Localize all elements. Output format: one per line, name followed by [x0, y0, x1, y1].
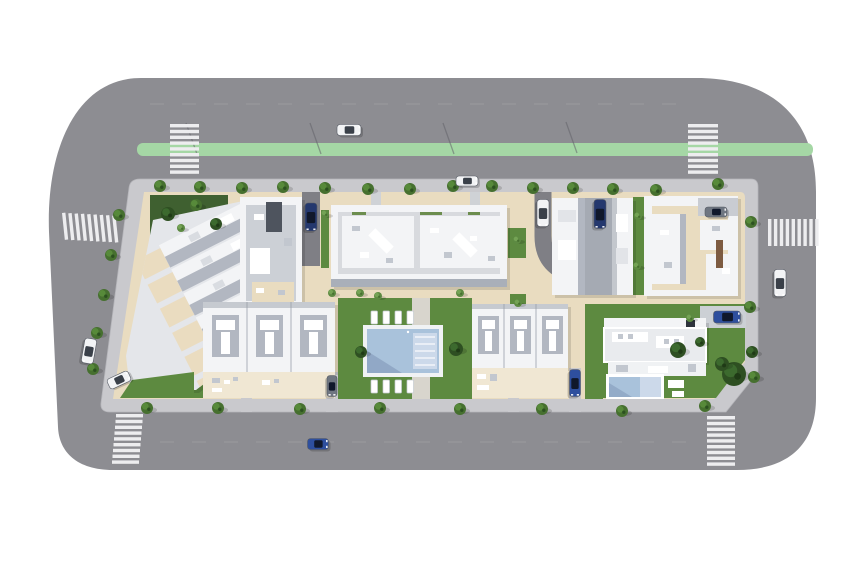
crosswalk-stripe — [170, 124, 199, 127]
crosswalk-stripe — [774, 219, 777, 246]
tree-texture — [168, 213, 172, 217]
crosswalk-stripe — [113, 455, 140, 458]
crosswalk-stripe — [707, 462, 735, 465]
crosswalk-stripe — [707, 451, 735, 454]
car-driveway-east — [535, 200, 549, 229]
sun-lounger — [371, 380, 378, 393]
tree-texture — [410, 189, 413, 192]
car-cabin — [314, 440, 322, 447]
crosswalk-stripe — [688, 153, 718, 156]
crosswalk-stripe — [707, 433, 735, 436]
tree-texture — [283, 187, 286, 190]
tree-texture — [200, 187, 203, 190]
crosswalk-stripe — [170, 159, 199, 162]
car-cabin — [307, 212, 315, 223]
tree-texture — [750, 307, 753, 310]
crosswalk-stripe — [768, 219, 771, 246]
car-top-road — [337, 125, 363, 138]
crosswalk-stripe — [707, 457, 735, 460]
crosswalk — [707, 416, 735, 466]
car-headlight — [329, 394, 331, 396]
car-headlight — [725, 209, 727, 211]
tree-texture — [734, 373, 741, 380]
tree-texture — [718, 184, 721, 187]
car-right-road — [772, 270, 786, 299]
tree-texture — [637, 266, 639, 268]
car-headlight — [782, 294, 784, 296]
crosswalk-stripe — [688, 124, 718, 127]
tree-texture — [380, 408, 383, 411]
car-headlight — [476, 182, 478, 184]
car-headlight — [359, 126, 361, 128]
crosswalk-stripe — [115, 426, 142, 429]
car-east-building — [705, 207, 729, 219]
car-villa — [714, 311, 743, 325]
crosswalk-stripe — [112, 460, 139, 463]
roof-planter — [468, 212, 480, 215]
tree-texture — [378, 296, 380, 298]
tree-texture — [678, 349, 682, 353]
entry-path-b1 — [371, 192, 381, 206]
sun-lounger — [371, 311, 378, 324]
sun-lounger — [395, 311, 402, 324]
crosswalk-stripe — [815, 219, 818, 246]
wood-pergola — [716, 240, 723, 268]
crosswalk-stripe — [688, 147, 718, 150]
car-cabin — [596, 209, 604, 221]
sun-lounger — [383, 311, 390, 324]
crosswalk-stripe — [707, 428, 735, 431]
sun-lounger — [407, 380, 414, 393]
tree-texture — [104, 295, 107, 298]
crosswalk — [768, 219, 819, 246]
tree-texture — [638, 216, 640, 218]
north-apartment-building — [331, 205, 510, 290]
sun-lounger — [407, 311, 414, 324]
crosswalk-stripe — [707, 439, 735, 442]
crosswalk-stripe — [170, 141, 199, 144]
block-f-patios — [472, 368, 568, 398]
crosswalk-stripe — [688, 159, 718, 162]
tree-texture — [751, 222, 754, 225]
car-bottom-road — [308, 439, 331, 452]
roof-pergola — [250, 248, 270, 274]
car-cabin — [722, 313, 733, 321]
tree-texture — [622, 411, 625, 414]
block-f-unit — [478, 316, 499, 354]
crosswalk-stripe — [688, 130, 718, 133]
crosswalk-stripe — [116, 414, 143, 417]
block-f-unit — [542, 316, 563, 354]
tree-texture — [722, 363, 726, 367]
car-headlight — [359, 132, 361, 134]
car-cabin — [571, 378, 578, 389]
crosswalk-stripe — [170, 147, 199, 150]
tree-texture — [492, 186, 495, 189]
car-headlight — [307, 229, 309, 231]
tree-texture — [656, 190, 659, 193]
tree-texture — [160, 186, 163, 189]
tree-texture — [147, 408, 150, 411]
crosswalk-stripe — [688, 165, 718, 168]
crosswalk-stripe — [688, 170, 718, 173]
car-cabin — [329, 382, 335, 390]
car-cabin — [776, 278, 784, 289]
crosswalk — [170, 124, 199, 174]
tree-texture — [242, 188, 245, 191]
crosswalk-stripe — [707, 416, 735, 419]
lawn-strip-a-b — [321, 210, 329, 268]
car-headlight — [738, 319, 740, 321]
crosswalk-stripe — [115, 431, 142, 434]
car-cabin — [345, 126, 355, 133]
crosswalk-stripe — [780, 219, 783, 246]
block-e-unit — [300, 315, 327, 357]
sun-lounger — [395, 380, 402, 393]
tree-texture — [97, 333, 100, 336]
car-cabin — [84, 346, 94, 357]
crosswalk-stripe — [809, 219, 812, 246]
crosswalk-stripe — [792, 219, 795, 246]
crosswalk-stripe — [803, 219, 806, 246]
car-headlight — [539, 224, 541, 226]
crosswalk — [688, 124, 718, 174]
car-townhouse-apron — [325, 376, 337, 399]
tree-texture — [93, 369, 96, 372]
tree-texture — [181, 228, 183, 230]
tree-texture — [705, 406, 708, 409]
sun-lounger — [383, 380, 390, 393]
tree-texture — [752, 352, 755, 355]
car-cabin — [463, 178, 472, 184]
tree-texture — [361, 352, 364, 355]
roof-stair-box — [266, 202, 282, 232]
block-a-northeast-roof — [240, 197, 302, 309]
tree-texture — [613, 189, 616, 192]
car-headlight — [776, 294, 778, 296]
car-headlight — [326, 440, 328, 442]
tree-texture — [690, 318, 692, 320]
car-headlight — [596, 226, 598, 228]
tree-texture — [111, 255, 114, 258]
car-headlight — [577, 394, 579, 396]
south-townhouse-row-west — [203, 302, 338, 398]
tree-texture — [325, 188, 328, 191]
car-cabin — [712, 209, 721, 215]
tree-texture — [453, 186, 456, 189]
crosswalk-stripe — [798, 219, 801, 246]
entry-path-b2 — [470, 192, 480, 206]
crosswalk-stripe — [707, 422, 735, 425]
tree-texture — [754, 377, 757, 380]
crosswalk-stripe — [170, 136, 199, 139]
car-driveway-west — [303, 203, 317, 233]
site-plan-rendering — [0, 0, 851, 582]
crosswalk-stripe — [170, 165, 199, 168]
car-headlight — [545, 224, 547, 226]
tree-texture — [700, 342, 703, 345]
car-headlight — [333, 394, 335, 396]
tree-texture — [332, 293, 334, 295]
tree-texture — [196, 205, 199, 208]
tree-texture — [460, 409, 463, 412]
tree-texture — [517, 240, 519, 242]
car-headlight — [326, 446, 328, 448]
crosswalk — [112, 414, 143, 464]
roof-planter — [352, 212, 366, 215]
car-headlight — [725, 213, 727, 215]
tree-texture — [573, 188, 576, 191]
car-courtyard — [592, 200, 606, 231]
tree-texture — [218, 408, 221, 411]
crosswalk-stripe — [114, 443, 141, 446]
tree-texture — [542, 409, 545, 412]
car-cabin — [539, 208, 547, 219]
car-parked-top — [456, 176, 480, 188]
crosswalk-stripe — [170, 170, 199, 173]
site-plan-svg — [0, 0, 851, 582]
tree-texture — [119, 215, 122, 218]
car-south-apron — [568, 370, 581, 399]
tree-texture — [300, 409, 303, 412]
crosswalk-stripe — [688, 136, 718, 139]
car-headlight — [602, 226, 604, 228]
block-e-unit — [212, 315, 239, 357]
tree-texture — [460, 293, 462, 295]
crosswalk-stripe — [170, 130, 199, 133]
tree-texture — [360, 293, 362, 295]
crosswalk-stripe — [786, 219, 789, 246]
roof-planter — [420, 212, 442, 215]
tree-texture — [456, 348, 460, 352]
block-f-unit — [510, 316, 531, 354]
crosswalk-stripe — [170, 153, 199, 156]
tree-texture — [518, 303, 520, 305]
car-headlight — [313, 229, 315, 231]
tree-texture — [533, 188, 536, 191]
parcel — [101, 179, 758, 412]
crosswalk-stripe — [707, 445, 735, 448]
crosswalk-stripe — [116, 420, 143, 423]
tree-texture — [325, 214, 327, 216]
car-headlight — [738, 313, 740, 315]
crosswalk-stripe — [114, 437, 141, 440]
crosswalk-stripe — [688, 141, 718, 144]
block-e-unit — [256, 315, 283, 357]
tree-texture — [216, 224, 219, 227]
car-headlight — [476, 178, 478, 180]
south-townhouse-row-east — [472, 304, 571, 398]
tree-texture — [368, 189, 371, 192]
crosswalk-stripe — [113, 449, 140, 452]
car-headlight — [571, 394, 573, 396]
